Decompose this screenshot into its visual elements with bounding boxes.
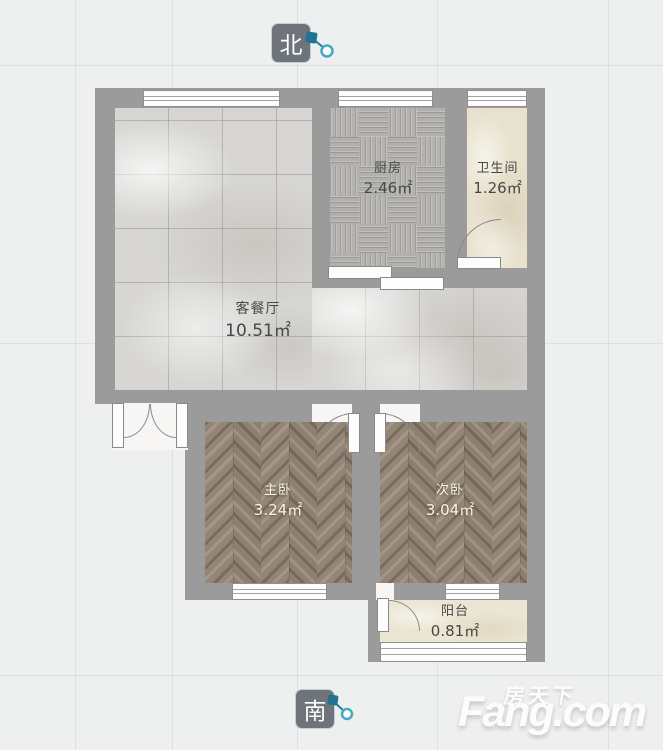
entry-door-jamb-left xyxy=(112,403,124,448)
bathroom-label: 卫生间 1.26㎡ xyxy=(455,160,540,199)
balcony-area: 0.81㎡ xyxy=(395,621,515,642)
south-compass-pin-icon xyxy=(326,694,358,728)
grid-line xyxy=(0,675,663,676)
window-living-top xyxy=(143,90,280,107)
second-door-leaf xyxy=(374,413,386,453)
window-kitchen-top xyxy=(338,90,433,107)
wall-bedroom-top xyxy=(186,404,545,422)
north-compass-pin-icon xyxy=(303,30,337,64)
master-bedroom-name: 主卧 xyxy=(218,482,338,500)
living-floor-upper xyxy=(115,108,312,390)
kitchen-label: 厨房 2.46㎡ xyxy=(328,160,448,199)
wall-living-bottom xyxy=(95,390,545,404)
grid-line xyxy=(0,65,663,66)
living-dining-label: 客餐厅 10.51㎡ xyxy=(188,300,328,343)
entry-door-jamb-right xyxy=(176,403,188,448)
window-master-bottom xyxy=(232,583,327,600)
master-bedroom-label: 主卧 3.24㎡ xyxy=(218,482,338,521)
south-label: 南 xyxy=(304,692,327,726)
window-bedroom-balcony xyxy=(445,583,500,600)
balcony-name: 阳台 xyxy=(395,603,515,621)
window-balcony-bottom xyxy=(380,642,527,662)
second-bedroom-area: 3.04㎡ xyxy=(390,500,510,521)
wall-left xyxy=(95,88,115,404)
kitchen-sliding-door-panel xyxy=(380,277,444,290)
second-bedroom-name: 次卧 xyxy=(390,482,510,500)
balcony-label: 阳台 0.81㎡ xyxy=(395,603,515,642)
kitchen-area: 2.46㎡ xyxy=(328,178,448,199)
wall-bedroom-left xyxy=(185,404,205,600)
living-dining-area: 10.51㎡ xyxy=(188,320,328,344)
fang-watermark: 房天下 Fang.com xyxy=(458,680,663,746)
floorplan-canvas: 厨房 2.46㎡ 卫生间 1.26㎡ 客餐厅 10.51㎡ 主卧 3.24㎡ 次… xyxy=(0,0,663,750)
fang-watermark-en: Fang.com xyxy=(458,688,645,737)
window-bathroom-top xyxy=(467,90,527,107)
bathroom-name: 卫生间 xyxy=(455,160,540,178)
master-door-leaf xyxy=(348,413,360,453)
north-label: 北 xyxy=(280,26,303,60)
second-bedroom-label: 次卧 3.04㎡ xyxy=(390,482,510,521)
bathroom-area: 1.26㎡ xyxy=(455,178,540,199)
master-bedroom-area: 3.24㎡ xyxy=(218,500,338,521)
balcony-door-leaf xyxy=(377,598,389,632)
grid-line xyxy=(75,0,76,750)
living-floor-lower xyxy=(312,288,527,390)
living-dining-name: 客餐厅 xyxy=(188,300,328,320)
bathroom-door-leaf xyxy=(457,257,501,269)
kitchen-name: 厨房 xyxy=(328,160,448,178)
grid-line xyxy=(608,0,609,750)
